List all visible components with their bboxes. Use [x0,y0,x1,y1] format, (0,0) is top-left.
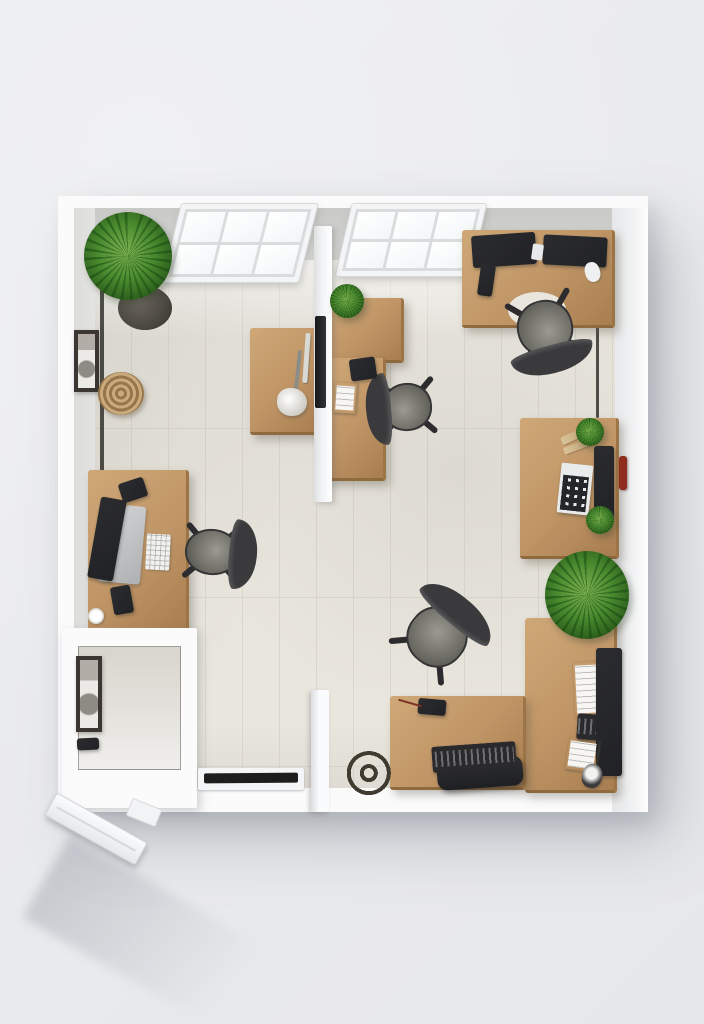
potted-plant-center-desk [330,284,364,318]
wall-stub [311,690,329,812]
office-floorplan-render: Photorealistic top-down 3D render of a s… [0,0,704,1024]
office-chair-left [171,517,252,587]
nook-clutter [77,737,100,750]
window-pane [262,212,307,242]
monitor-1 [471,232,537,268]
window-pane [213,245,258,275]
potted-plant-right-bottom [586,506,614,534]
skylight-window-1 [162,204,317,282]
red-wall-fixture [619,456,627,490]
window-pane [221,212,266,242]
window-pane [346,242,389,269]
monitor-2 [542,234,607,267]
framed-picture-nook [76,656,102,732]
desk-figurine [277,388,307,416]
desk-center-left [250,328,321,435]
notepad [332,381,358,415]
coffee-cup-left [88,608,104,624]
window-pane [254,245,299,275]
window-pane [352,212,395,239]
potted-plant-top-left [84,212,172,300]
webcam [531,243,544,260]
door-shadow [23,835,330,1024]
office-chair-center [369,371,444,443]
potted-plant-bottom-right [545,551,629,639]
window-pane [172,245,217,275]
window-pane [393,212,436,239]
modem [417,698,446,716]
desk-camera [349,356,378,381]
window-pane [180,212,225,242]
woven-basket [98,372,144,415]
monitor-bottom-right [596,648,622,776]
window-pane [386,242,429,269]
calculator-keyboard [556,462,593,515]
door-threshold-bar [204,773,298,784]
framed-picture-left-wall [74,330,99,392]
keyboard-white [145,533,171,570]
potted-plant-right-top [576,418,604,446]
partition-monitor [315,316,326,408]
